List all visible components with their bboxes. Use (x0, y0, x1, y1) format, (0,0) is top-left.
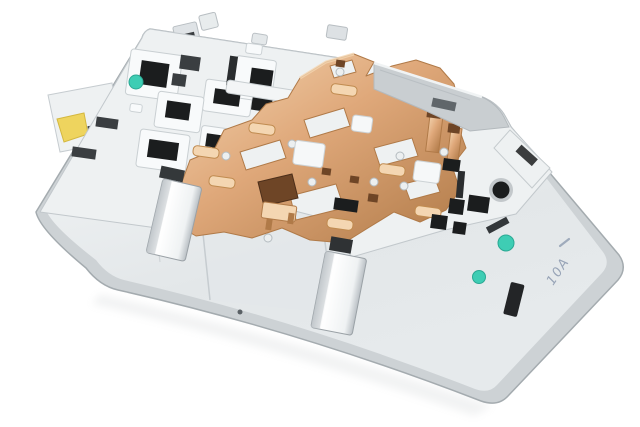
plastic-nub (130, 103, 143, 113)
connector-slot (452, 221, 467, 235)
contact (335, 59, 345, 67)
connector-slot (179, 55, 201, 72)
module-photo: 10A (0, 0, 640, 427)
rivet (222, 152, 230, 160)
contact (321, 167, 331, 175)
plastic-nub (245, 43, 262, 55)
round-hole (493, 182, 510, 199)
rivet (396, 152, 404, 160)
latch-tab (251, 33, 267, 45)
rivet (308, 178, 316, 186)
plastic-post (351, 115, 373, 134)
rivet (440, 148, 448, 156)
connector-slot (165, 100, 191, 120)
connector-slot (442, 158, 461, 172)
photo-canvas: 10A (0, 0, 640, 427)
latch-tab (199, 12, 219, 31)
rivet (400, 182, 408, 190)
connector-slot (171, 73, 187, 87)
connector-slot (467, 195, 490, 214)
connector-slot (430, 214, 448, 230)
rivet (264, 234, 272, 242)
teal-dot-right-upper (498, 235, 514, 251)
contact (367, 193, 378, 202)
mold-dot (238, 310, 243, 315)
rivet (370, 178, 378, 186)
connector-slot (448, 198, 465, 215)
latch-tab (326, 25, 348, 41)
teal-dot-top-left (129, 75, 143, 89)
contact (349, 175, 359, 183)
teal-dot-right-lower (473, 271, 486, 284)
rivet (336, 68, 344, 76)
plastic-post (413, 160, 442, 183)
plastic-post (292, 140, 325, 168)
